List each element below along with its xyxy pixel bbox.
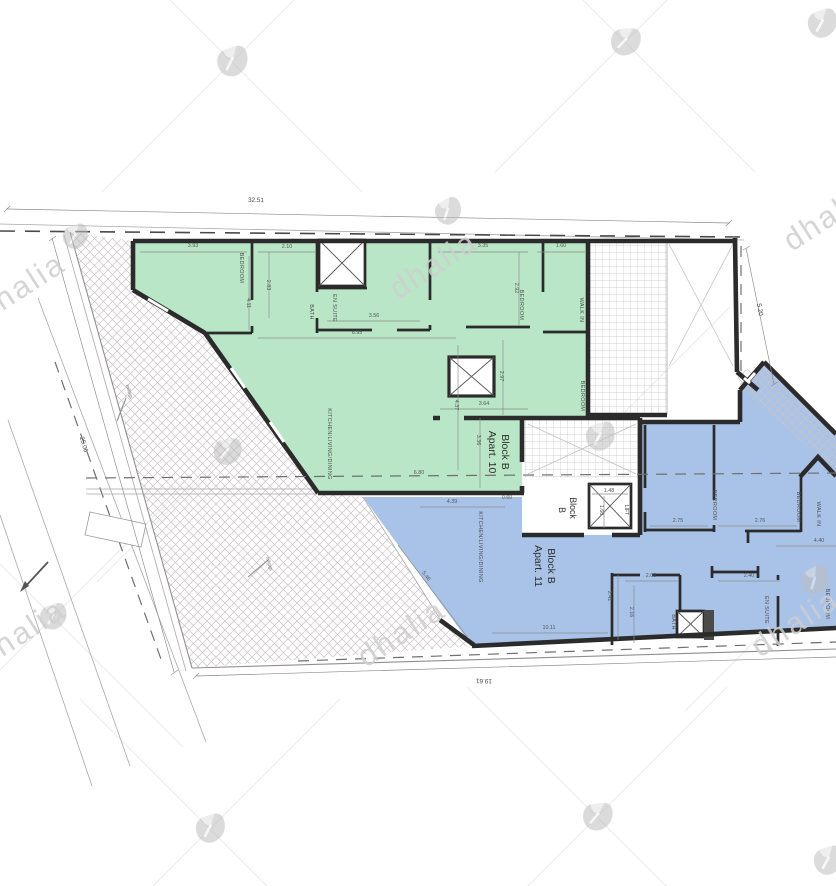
dim-2-16: 2.16 <box>628 607 634 618</box>
dim-4-11: 4.11 <box>245 298 251 308</box>
stair-block-label-line1: Block <box>568 497 578 519</box>
dim-3-36: 3.36 <box>475 435 481 446</box>
room-label-kitchen-b: KITCHEN/LIVING/DINING <box>477 511 483 583</box>
tiled-yard <box>590 243 667 415</box>
dim-3-64: 3.64 <box>479 401 490 407</box>
dim-2-97: 2.97 <box>498 371 504 382</box>
room-label-bedroom-g3: BEDROOM <box>579 381 585 412</box>
lift-label: LIFT <box>623 505 629 515</box>
dim-4-37: 4.37 <box>453 400 459 411</box>
dim-4-39: 4.39 <box>447 499 458 505</box>
room-label-walkin-g: WALK IN <box>578 298 584 323</box>
dim-3-93: 3.93 <box>188 243 199 249</box>
room-label-bedroom-b1: BEDROOM <box>711 490 717 521</box>
dim-lift-1-48: 1.48 <box>604 488 615 494</box>
dim-2-92: 2.92 <box>513 283 519 294</box>
dim-2-10: 2.10 <box>282 244 293 250</box>
dim-0-60: 0.60 <box>502 495 513 501</box>
dim-1-60: 1.60 <box>556 243 567 249</box>
room-label-bedroom-b2: BEDROOM <box>795 492 801 523</box>
stair-treads <box>524 420 638 478</box>
dim-lift-1-60: 1.60 <box>598 505 604 516</box>
apartment-11-label-line1: Block B <box>545 548 557 584</box>
room-label-bath-g: BATH <box>308 304 314 320</box>
dim-2-75: 2.75 <box>673 518 684 524</box>
dim-2-00: 2.00 <box>646 573 657 579</box>
room-label-bedroom-g2: BEDROOM <box>518 290 524 321</box>
room-label-walkin-b: WALK IN <box>815 502 821 527</box>
room-label-kitchen-g: KITCHEN/LIVING/DINING <box>326 408 332 480</box>
floor-plan-svg: 32.51 25.06 19.61 5.20 Block B Apart. 10… <box>0 0 836 886</box>
room-label-bedroom-g1: BEDROOM <box>238 253 244 284</box>
room-label-bath-b: BATH <box>670 614 676 630</box>
dim-6-80: 6.80 <box>414 470 425 476</box>
room-label-ensuite-g: EN SUITE <box>331 294 337 322</box>
dim-6-95: 6.95 <box>352 330 363 336</box>
dim-10-11: 10.11 <box>542 625 555 631</box>
shaft-top <box>319 240 365 286</box>
dim-2-41: 2.41 <box>606 591 612 602</box>
apartment-11-label-line2: Apart. 11 <box>532 545 544 587</box>
apartment-10-label-line2: Apart. 10 <box>486 431 498 474</box>
floor-plan-page: 32.51 25.06 19.61 5.20 Block B Apart. 10… <box>0 0 836 886</box>
shaft-mid <box>449 357 494 396</box>
dim-4-40: 4.40 <box>814 538 825 544</box>
stair-block-label-line2: B <box>557 507 567 513</box>
dim-site-bottom: 19.61 <box>475 677 492 685</box>
dim-2-83: 2.83 <box>265 280 271 291</box>
dim-3-56: 3.56 <box>369 313 380 319</box>
apartment-10-label-line1: Block B <box>499 434 511 470</box>
dim-2-40: 2.40 <box>744 573 755 579</box>
dim-site-top: 32.51 <box>248 197 265 204</box>
dim-2-76: 2.76 <box>755 518 766 524</box>
